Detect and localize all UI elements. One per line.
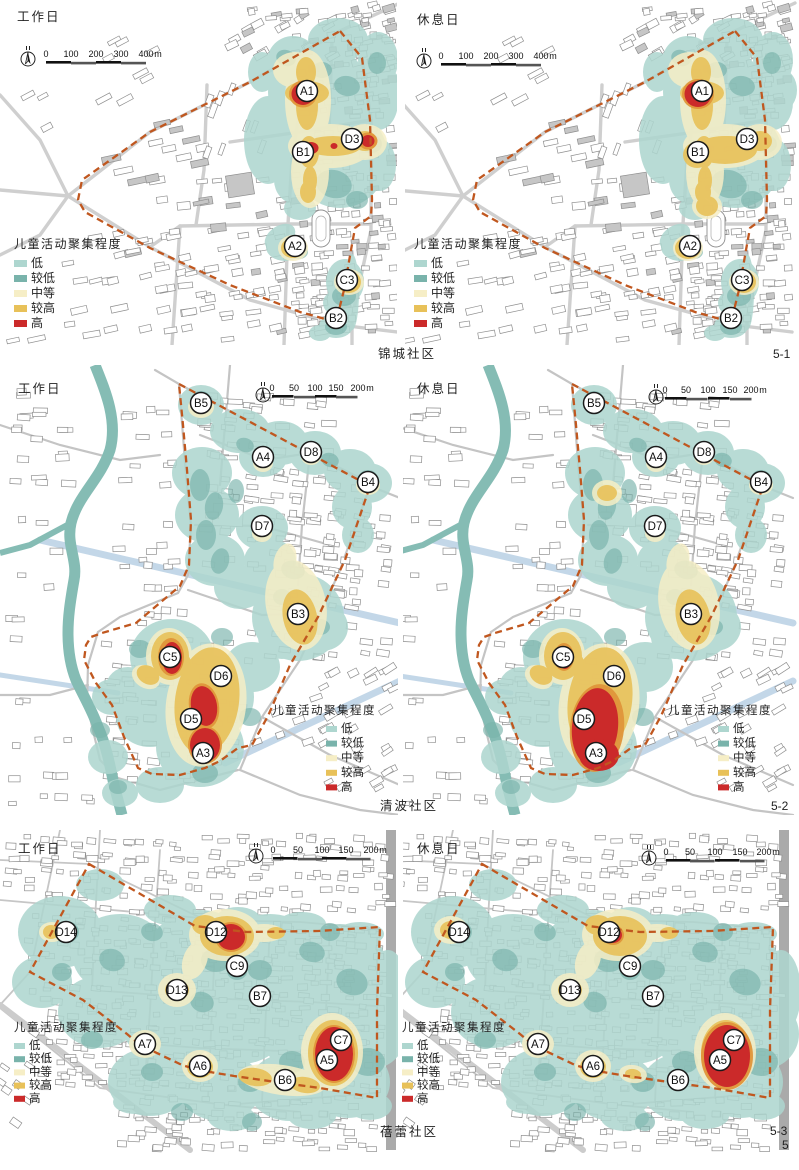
svg-text:D8: D8 bbox=[697, 447, 712, 459]
svg-text:中等: 中等 bbox=[733, 750, 756, 764]
svg-text:A3: A3 bbox=[589, 748, 603, 760]
svg-text:m: m bbox=[549, 51, 557, 61]
svg-text:锦城社区: 锦城社区 bbox=[378, 346, 436, 361]
svg-text:高: 高 bbox=[431, 315, 443, 330]
svg-text:低: 低 bbox=[31, 256, 43, 270]
svg-text:50: 50 bbox=[685, 847, 695, 857]
svg-text:D3: D3 bbox=[345, 134, 360, 146]
svg-text:工作日: 工作日 bbox=[17, 10, 61, 24]
svg-text:较低: 较低 bbox=[417, 1051, 440, 1065]
svg-text:低: 低 bbox=[417, 1039, 429, 1052]
svg-text:高: 高 bbox=[417, 1091, 429, 1105]
svg-text:5-2: 5-2 bbox=[771, 799, 789, 813]
svg-text:m: m bbox=[379, 845, 387, 855]
svg-text:较高: 较高 bbox=[431, 300, 455, 315]
svg-text:休息日: 休息日 bbox=[417, 12, 461, 27]
svg-text:D6: D6 bbox=[607, 671, 622, 683]
svg-text:100: 100 bbox=[700, 385, 715, 395]
svg-text:低: 低 bbox=[29, 1039, 41, 1052]
svg-text:低: 低 bbox=[431, 256, 443, 270]
svg-text:B1: B1 bbox=[691, 147, 705, 159]
svg-text:200: 200 bbox=[756, 847, 771, 857]
svg-text:较低: 较低 bbox=[431, 270, 455, 285]
svg-text:D13: D13 bbox=[166, 985, 187, 997]
svg-text:中等: 中等 bbox=[431, 285, 455, 300]
svg-text:C5: C5 bbox=[556, 652, 571, 664]
svg-text:m: m bbox=[154, 49, 162, 59]
svg-text:A4: A4 bbox=[649, 452, 664, 464]
svg-text:50: 50 bbox=[681, 385, 691, 395]
svg-text:D3: D3 bbox=[740, 134, 755, 146]
svg-text:D13: D13 bbox=[559, 985, 580, 997]
svg-text:150: 150 bbox=[338, 845, 353, 855]
svg-text:A1: A1 bbox=[695, 86, 709, 98]
svg-text:100: 100 bbox=[307, 383, 322, 393]
svg-text:中等: 中等 bbox=[417, 1064, 440, 1078]
svg-text:A6: A6 bbox=[586, 1061, 600, 1073]
svg-text:低: 低 bbox=[341, 722, 353, 735]
svg-text:0: 0 bbox=[438, 51, 443, 61]
svg-text:5: 5 bbox=[782, 1138, 789, 1152]
svg-text:0: 0 bbox=[663, 847, 668, 857]
svg-text:A5: A5 bbox=[320, 1055, 334, 1067]
svg-text:5-3: 5-3 bbox=[770, 1124, 788, 1138]
svg-text:A1: A1 bbox=[300, 86, 314, 98]
svg-text:儿童活动聚集程度: 儿童活动聚集程度 bbox=[414, 236, 522, 251]
svg-text:50: 50 bbox=[293, 845, 303, 855]
svg-text:工作日: 工作日 bbox=[18, 382, 62, 396]
svg-text:m: m bbox=[759, 385, 767, 395]
svg-text:B7: B7 bbox=[253, 991, 267, 1003]
svg-text:高: 高 bbox=[31, 315, 43, 330]
svg-text:C3: C3 bbox=[735, 275, 750, 287]
svg-text:200: 200 bbox=[743, 385, 758, 395]
svg-text:D8: D8 bbox=[304, 447, 319, 459]
svg-text:300: 300 bbox=[508, 51, 523, 61]
svg-text:100: 100 bbox=[63, 49, 78, 59]
svg-text:D5: D5 bbox=[577, 714, 592, 726]
svg-text:B3: B3 bbox=[291, 609, 305, 621]
svg-text:C7: C7 bbox=[727, 1035, 742, 1047]
svg-text:100: 100 bbox=[458, 51, 473, 61]
svg-text:较高: 较高 bbox=[733, 765, 756, 779]
svg-text:高: 高 bbox=[733, 779, 745, 793]
svg-text:较高: 较高 bbox=[29, 1078, 52, 1092]
svg-text:D7: D7 bbox=[255, 521, 270, 533]
svg-text:较低: 较低 bbox=[341, 736, 364, 750]
svg-text:0: 0 bbox=[43, 49, 48, 59]
svg-text:A7: A7 bbox=[531, 1039, 545, 1051]
svg-text:较低: 较低 bbox=[29, 1051, 52, 1065]
svg-text:200: 200 bbox=[350, 383, 365, 393]
svg-text:B4: B4 bbox=[361, 477, 376, 489]
svg-text:中等: 中等 bbox=[341, 750, 364, 764]
svg-text:200: 200 bbox=[88, 49, 103, 59]
svg-text:中等: 中等 bbox=[29, 1064, 52, 1078]
svg-text:较低: 较低 bbox=[733, 736, 756, 750]
svg-text:150: 150 bbox=[722, 385, 737, 395]
svg-text:儿童活动聚集程度: 儿童活动聚集程度 bbox=[14, 236, 122, 251]
svg-text:较低: 较低 bbox=[31, 270, 55, 285]
svg-text:蓓蕾社区: 蓓蕾社区 bbox=[380, 1124, 438, 1139]
svg-text:B6: B6 bbox=[278, 1075, 292, 1087]
svg-text:A4: A4 bbox=[256, 452, 271, 464]
svg-text:0: 0 bbox=[270, 845, 275, 855]
svg-text:C7: C7 bbox=[334, 1035, 349, 1047]
svg-text:休息日: 休息日 bbox=[417, 841, 461, 856]
svg-text:A5: A5 bbox=[713, 1055, 727, 1067]
svg-text:B6: B6 bbox=[671, 1075, 685, 1087]
svg-text:400: 400 bbox=[533, 51, 548, 61]
svg-text:中等: 中等 bbox=[31, 285, 55, 300]
svg-text:300: 300 bbox=[113, 49, 128, 59]
svg-text:0: 0 bbox=[662, 385, 667, 395]
svg-text:休息日: 休息日 bbox=[417, 381, 461, 396]
svg-text:D5: D5 bbox=[184, 714, 199, 726]
svg-text:高: 高 bbox=[29, 1091, 41, 1105]
svg-text:100: 100 bbox=[707, 847, 722, 857]
svg-text:B5: B5 bbox=[194, 398, 208, 410]
svg-text:A2: A2 bbox=[288, 241, 302, 253]
svg-text:A7: A7 bbox=[138, 1039, 152, 1051]
svg-text:B2: B2 bbox=[724, 313, 738, 325]
svg-text:B5: B5 bbox=[587, 398, 601, 410]
svg-text:低: 低 bbox=[733, 722, 745, 735]
svg-text:儿童活动聚集程度: 儿童活动聚集程度 bbox=[14, 1020, 118, 1034]
svg-text:B2: B2 bbox=[329, 313, 343, 325]
svg-text:C9: C9 bbox=[623, 961, 638, 973]
svg-text:0: 0 bbox=[269, 383, 274, 393]
svg-text:儿童活动聚集程度: 儿童活动聚集程度 bbox=[272, 703, 376, 717]
svg-text:D6: D6 bbox=[214, 671, 229, 683]
svg-text:200: 200 bbox=[483, 51, 498, 61]
svg-text:200: 200 bbox=[363, 845, 378, 855]
svg-text:D7: D7 bbox=[648, 521, 663, 533]
svg-text:高: 高 bbox=[341, 779, 353, 793]
svg-text:100: 100 bbox=[314, 845, 329, 855]
svg-text:B1: B1 bbox=[296, 147, 310, 159]
svg-text:B7: B7 bbox=[646, 991, 660, 1003]
svg-text:D12: D12 bbox=[205, 927, 226, 939]
svg-text:m: m bbox=[366, 383, 374, 393]
svg-text:儿童活动聚集程度: 儿童活动聚集程度 bbox=[668, 703, 772, 717]
svg-text:较高: 较高 bbox=[417, 1078, 440, 1092]
svg-text:C5: C5 bbox=[163, 652, 178, 664]
svg-text:较高: 较高 bbox=[31, 300, 55, 315]
svg-text:C9: C9 bbox=[230, 961, 245, 973]
svg-text:A6: A6 bbox=[193, 1061, 207, 1073]
svg-text:B4: B4 bbox=[754, 477, 769, 489]
svg-text:50: 50 bbox=[289, 383, 299, 393]
svg-text:较高: 较高 bbox=[341, 765, 364, 779]
svg-text:D12: D12 bbox=[598, 927, 619, 939]
svg-text:400: 400 bbox=[138, 49, 153, 59]
svg-text:A3: A3 bbox=[196, 748, 210, 760]
svg-text:清波社区: 清波社区 bbox=[380, 798, 438, 813]
svg-text:m: m bbox=[772, 847, 780, 857]
svg-text:儿童活动聚集程度: 儿童活动聚集程度 bbox=[402, 1020, 506, 1034]
svg-text:150: 150 bbox=[328, 383, 343, 393]
svg-text:工作日: 工作日 bbox=[18, 842, 62, 856]
svg-text:D14: D14 bbox=[448, 927, 470, 939]
svg-text:B3: B3 bbox=[684, 609, 698, 621]
svg-text:D14: D14 bbox=[55, 927, 77, 939]
svg-text:C3: C3 bbox=[340, 275, 355, 287]
svg-text:150: 150 bbox=[732, 847, 747, 857]
svg-text:5-1: 5-1 bbox=[773, 347, 791, 361]
svg-text:A2: A2 bbox=[683, 241, 697, 253]
